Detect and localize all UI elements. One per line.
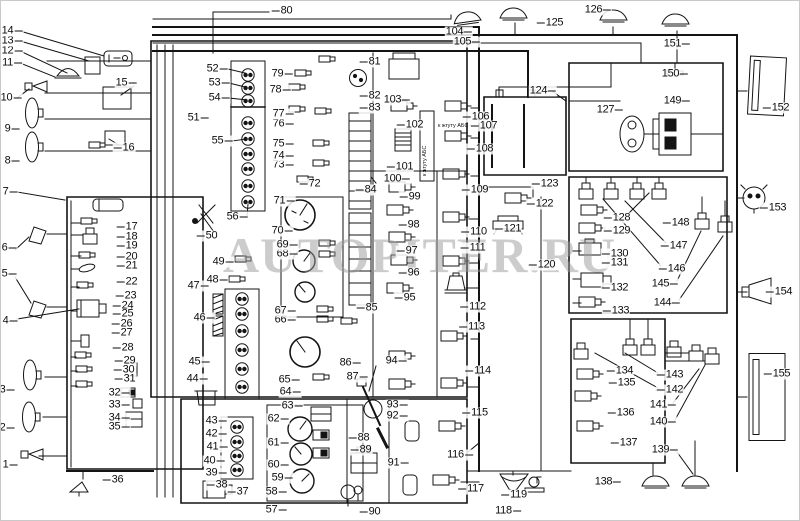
component-label-99: 99 <box>399 192 422 203</box>
component-label-41: 41 <box>206 442 229 453</box>
component-label-90: 90 <box>359 507 382 518</box>
component-label-4: 4 <box>2 316 19 327</box>
component-label-21: 21 <box>116 261 139 272</box>
component-label-7: 7 <box>2 187 19 198</box>
component-label-53: 53 <box>208 78 231 89</box>
component-label-151: 151 <box>663 39 691 50</box>
component-label-56: 56 <box>226 212 249 223</box>
component-label-94: 94 <box>385 356 408 367</box>
component-label-111: 111 <box>460 243 487 254</box>
component-label-33: 33 <box>108 400 131 411</box>
component-label-95: 95 <box>394 293 417 304</box>
component-label-139: 139 <box>651 445 679 456</box>
component-label-65: 65 <box>278 375 301 386</box>
component-label-150: 150 <box>661 69 689 80</box>
component-label-27: 27 <box>111 328 134 339</box>
component-label-48: 48 <box>206 275 229 286</box>
component-label-149: 149 <box>663 96 691 107</box>
component-label-32: 32 <box>108 388 131 399</box>
component-label-67: 67 <box>274 306 297 317</box>
component-label-121: 121 <box>494 224 522 235</box>
component-label-108: 108 <box>466 144 494 155</box>
component-label-125: 125 <box>536 18 564 29</box>
component-label-16: 16 <box>113 143 136 154</box>
component-label-52: 52 <box>206 64 229 75</box>
component-label-132: 132 <box>601 283 629 294</box>
component-label-63: 63 <box>281 401 304 412</box>
component-label-145: 145 <box>651 279 679 290</box>
component-label-5: 5 <box>1 269 18 280</box>
component-label-58: 58 <box>265 487 288 498</box>
component-label-89: 89 <box>350 445 373 456</box>
component-label-96: 96 <box>398 268 421 279</box>
component-label-61: 61 <box>267 438 290 449</box>
component-label-79: 79 <box>271 69 294 80</box>
component-label-92: 92 <box>386 411 409 422</box>
component-label-97: 97 <box>396 246 419 257</box>
component-label-153: 153 <box>759 203 787 214</box>
component-label-81: 81 <box>359 57 382 68</box>
component-label-45: 45 <box>188 357 211 368</box>
component-label-44: 44 <box>186 374 209 385</box>
component-label-75: 75 <box>272 139 295 150</box>
component-label-13: 13 <box>1 36 24 47</box>
component-label-117: 117 <box>457 484 485 495</box>
component-label-91: 91 <box>387 458 410 469</box>
component-label-76: 76 <box>272 119 295 130</box>
component-label-98: 98 <box>398 220 421 231</box>
component-label-46: 46 <box>193 313 216 324</box>
component-label-14: 14 <box>1 26 24 37</box>
component-label-49: 49 <box>212 257 235 268</box>
component-label-84: 84 <box>355 185 378 196</box>
component-label-50: 50 <box>196 231 219 242</box>
component-label-93: 93 <box>386 400 409 411</box>
component-label-35: 35 <box>108 422 131 433</box>
component-label-137: 137 <box>610 438 638 449</box>
component-label-54: 54 <box>208 93 231 104</box>
component-label-116: 116 <box>446 450 474 461</box>
component-label-1: 1 <box>2 460 19 471</box>
component-label-154: 154 <box>765 287 793 298</box>
component-label-118: 118 <box>494 506 522 517</box>
component-label-136: 136 <box>607 408 635 419</box>
component-label-112: 112 <box>459 302 487 313</box>
component-label-124: 124 <box>529 86 557 97</box>
component-label-123: 123 <box>531 179 559 190</box>
component-label-105: 105 <box>453 37 481 48</box>
component-label-133: 133 <box>602 306 630 317</box>
component-label-128: 128 <box>603 213 631 224</box>
component-label-6: 6 <box>1 243 18 254</box>
component-label-42: 42 <box>205 429 228 440</box>
component-label-38: 38 <box>206 480 229 491</box>
wiring-diagram-page: AUTOPITER.RU 123456789101112131415161718… <box>0 0 800 521</box>
component-label-62: 62 <box>267 414 290 425</box>
component-label-131: 131 <box>601 258 629 269</box>
component-label-134: 134 <box>606 366 634 377</box>
component-label-129: 129 <box>603 226 631 237</box>
component-label-12: 12 <box>1 46 24 57</box>
component-label-11: 11 <box>1 58 23 69</box>
component-label-85: 85 <box>356 303 379 314</box>
component-label-119: 119 <box>500 490 528 501</box>
component-label-87: 87 <box>346 372 369 383</box>
component-label-69: 69 <box>276 240 299 251</box>
component-label-83: 83 <box>359 103 382 114</box>
component-labels-layer: 1234567891011121314151617181920212223242… <box>1 1 799 520</box>
component-label-64: 64 <box>279 387 302 398</box>
component-label-103: 103 <box>383 95 411 106</box>
component-label-144: 144 <box>653 298 681 309</box>
component-label-3: 3 <box>0 385 15 396</box>
component-label-57: 57 <box>265 505 288 516</box>
component-label-60: 60 <box>267 460 290 471</box>
component-label-109: 109 <box>461 185 489 196</box>
component-label-59: 59 <box>271 473 294 484</box>
component-label-72: 72 <box>299 179 322 190</box>
component-label-88: 88 <box>348 433 371 444</box>
component-label-15: 15 <box>115 78 138 89</box>
component-label-135: 135 <box>608 378 636 389</box>
component-label-115: 115 <box>461 408 489 419</box>
component-label-147: 147 <box>660 241 688 252</box>
component-label-9: 9 <box>4 124 21 135</box>
component-label-143: 143 <box>656 370 684 381</box>
component-label-78: 78 <box>269 85 292 96</box>
component-label-37: 37 <box>227 487 250 498</box>
component-label-113: 113 <box>458 322 486 333</box>
component-label-22: 22 <box>116 277 139 288</box>
component-label-110: 110 <box>460 227 488 238</box>
component-label-142: 142 <box>656 385 684 396</box>
component-label-55: 55 <box>211 136 234 147</box>
component-label-101: 101 <box>386 162 414 173</box>
component-label-107: 107 <box>470 121 498 132</box>
component-label-40: 40 <box>203 456 226 467</box>
component-label-100: 100 <box>383 174 411 185</box>
harness-annotation-2: к жгуту АБС <box>423 146 429 176</box>
component-label-114: 114 <box>464 366 492 377</box>
component-label-102: 102 <box>396 120 424 131</box>
component-label-120: 120 <box>528 260 556 271</box>
component-label-155: 155 <box>763 369 791 380</box>
component-label-77: 77 <box>272 109 295 120</box>
harness-annotation-1: к жгуту АБС <box>438 124 468 130</box>
component-label-86: 86 <box>339 358 362 369</box>
component-label-127: 127 <box>596 105 624 116</box>
component-label-8: 8 <box>4 156 21 167</box>
component-label-74: 74 <box>272 151 295 162</box>
component-label-126: 126 <box>584 5 612 16</box>
component-label-148: 148 <box>662 218 690 229</box>
component-label-51: 51 <box>187 113 210 124</box>
component-label-43: 43 <box>205 416 228 427</box>
component-label-39: 39 <box>205 468 228 479</box>
component-label-71: 71 <box>273 196 296 207</box>
component-label-82: 82 <box>359 91 382 102</box>
component-label-2: 2 <box>0 423 15 434</box>
component-label-138: 138 <box>594 477 622 488</box>
component-label-31: 31 <box>114 374 137 385</box>
component-label-36: 36 <box>102 475 125 486</box>
component-label-28: 28 <box>112 343 135 354</box>
component-label-80: 80 <box>271 6 294 17</box>
component-label-70: 70 <box>271 226 294 237</box>
component-label-152: 152 <box>762 103 790 114</box>
component-label-10: 10 <box>0 93 22 104</box>
component-label-140: 140 <box>649 417 677 428</box>
component-label-141: 141 <box>649 400 677 411</box>
component-label-122: 122 <box>526 199 554 210</box>
component-label-146: 146 <box>658 264 686 275</box>
